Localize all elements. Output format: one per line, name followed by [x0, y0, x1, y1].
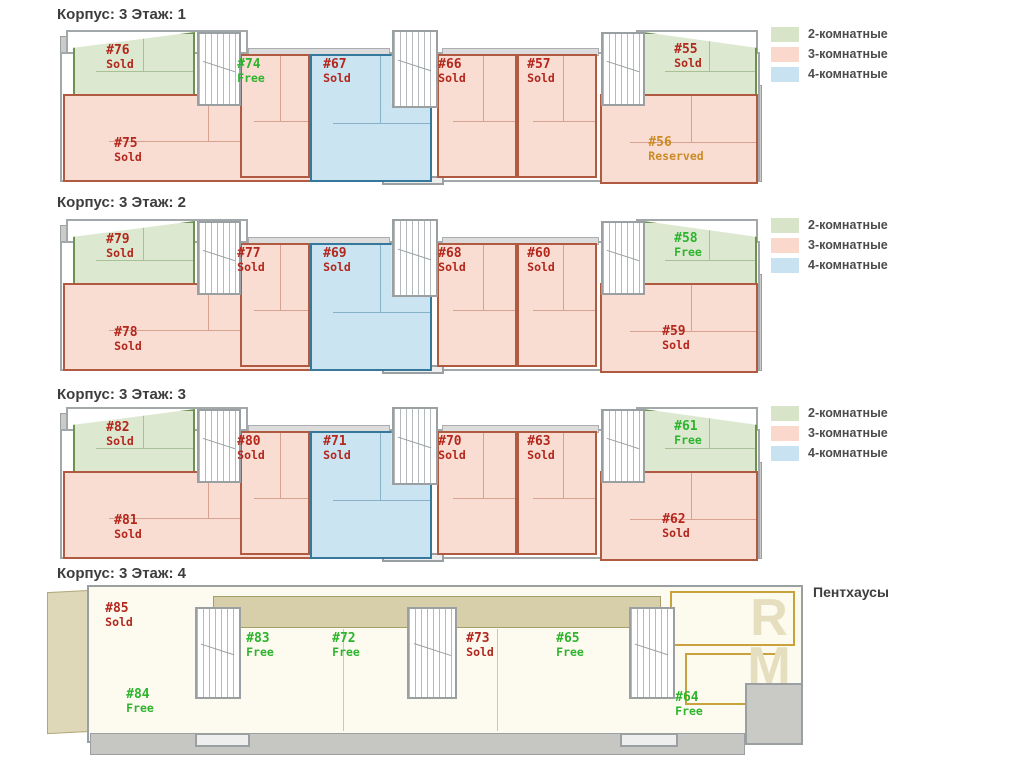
apartment-number: #55	[674, 42, 702, 57]
apartment-status: Sold	[106, 435, 134, 449]
apartment-69-label[interactable]: #69Sold	[323, 246, 351, 275]
apartment-84-label[interactable]: #84Free	[126, 687, 154, 716]
apartment-70-label[interactable]: #70Sold	[438, 434, 466, 463]
floor-2-plan: #79Sold#78Sold#77Sold#69Sold#68Sold#60So…	[60, 219, 760, 374]
legend-swatch-3rooms	[771, 47, 799, 62]
legend: 2-комнатные 3-комнатные 4-комнатные	[771, 215, 888, 275]
apartment-status: Sold	[106, 58, 134, 72]
apartment-number: #73	[466, 631, 494, 646]
stairwell-icon	[601, 409, 645, 483]
apartment-number: #56	[648, 135, 703, 150]
apartment-status: Sold	[662, 527, 690, 541]
stairwell-icon	[197, 32, 241, 106]
watermark: R M	[737, 595, 801, 691]
entrance-porch	[620, 733, 678, 747]
legend-swatch-4rooms	[771, 258, 799, 273]
apartment-number: #59	[662, 324, 690, 339]
stairwell-icon	[629, 607, 675, 699]
legend-label: 3-комнатные	[808, 426, 888, 440]
apartment-78-label[interactable]: #78Sold	[114, 325, 142, 354]
apartment-status: Sold	[237, 449, 265, 463]
legend-swatch-4rooms	[771, 67, 799, 82]
wall-divider	[497, 629, 498, 731]
apartment-57-label[interactable]: #57Sold	[527, 57, 555, 86]
apartment-number: #83	[246, 631, 274, 646]
legend-label: 4-комнатные	[808, 258, 888, 272]
legend-row-3rooms: 3-комнатные	[771, 235, 888, 255]
apartment-number: #61	[674, 419, 702, 434]
apartment-85-label[interactable]: #85Sold	[105, 601, 133, 630]
floor-2-title: Корпус: 3 Этаж: 2	[57, 194, 186, 211]
apartment-number: #76	[106, 43, 134, 58]
legend-label: 2-комнатные	[808, 406, 888, 420]
apartment-number: #71	[323, 434, 351, 449]
apartment-number: #77	[237, 246, 265, 261]
floor-4-plan: R M #85Sold#83Free#72Free#73Sold#65Free#…	[45, 583, 865, 763]
apartment-status: Sold	[105, 616, 133, 630]
apartment-status: Reserved	[648, 150, 703, 164]
apartment-56-label[interactable]: #56Reserved	[648, 135, 703, 164]
legend-label: 4-комнатные	[808, 446, 888, 460]
legend-row-4rooms: 4-комнатные	[771, 255, 888, 275]
watermark-letter: M	[737, 643, 801, 691]
apartment-63-label[interactable]: #63Sold	[527, 434, 555, 463]
apartment-status: Sold	[527, 261, 555, 275]
apartment-number: #69	[323, 246, 351, 261]
apartment-number: #62	[662, 512, 690, 527]
legend-row-2rooms: 2-комнатные	[771, 403, 888, 423]
apartment-76-label[interactable]: #76Sold	[106, 43, 134, 72]
stairwell-icon	[197, 409, 241, 483]
apartment-number: #81	[114, 513, 142, 528]
stairwell-icon	[601, 221, 645, 295]
stairwell-icon	[601, 32, 645, 106]
balcony-slab-left	[47, 590, 91, 734]
apartment-number: #75	[114, 136, 142, 151]
legend-row-2rooms: 2-комнатные	[771, 215, 888, 235]
legend-label: 2-комнатные	[808, 218, 888, 232]
legend-label: 4-комнатные	[808, 67, 888, 81]
apartment-number: #63	[527, 434, 555, 449]
legend-swatch-2rooms	[771, 406, 799, 421]
apartment-80-label[interactable]: #80Sold	[237, 434, 265, 463]
apartment-number: #70	[438, 434, 466, 449]
stairwell-icon	[195, 607, 241, 699]
apartment-status: Sold	[323, 72, 351, 86]
legend: 2-комнатные 3-комнатные 4-комнатные	[771, 403, 888, 463]
apartment-71-label[interactable]: #71Sold	[323, 434, 351, 463]
apartment-number: #80	[237, 434, 265, 449]
watermark-letter: R	[737, 595, 801, 643]
apartment-number: #57	[527, 57, 555, 72]
apartment-status: Sold	[237, 261, 265, 275]
apartment-73-label[interactable]: #73Sold	[466, 631, 494, 660]
legend-label: 3-комнатные	[808, 47, 888, 61]
apartment-number: #79	[106, 232, 134, 247]
legend-row-2rooms: 2-комнатные	[771, 24, 888, 44]
apartment-61-label[interactable]: #61Free	[674, 419, 702, 448]
apartment-72-label[interactable]: #72Free	[332, 631, 360, 660]
stairwell-icon	[407, 607, 457, 699]
apartment-status: Free	[556, 646, 584, 660]
apartment-82-label[interactable]: #82Sold	[106, 420, 134, 449]
legend-swatch-3rooms	[771, 426, 799, 441]
apartment-status: Free	[126, 702, 154, 716]
apartment-status: Free	[674, 246, 702, 260]
apartment-number: #58	[674, 231, 702, 246]
legend-swatch-4rooms	[771, 446, 799, 461]
apartment-number: #74	[237, 57, 265, 72]
floor-plans-page: Корпус: 3 Этаж: 1 Корпус: 3 Этаж: 2 Корп…	[0, 0, 1024, 768]
stairwell-icon	[197, 221, 241, 295]
apartment-number: #65	[556, 631, 584, 646]
legend: 2-комнатные 3-комнатные 4-комнатные	[771, 24, 888, 84]
entrance-porch	[195, 733, 250, 747]
apartment-status: Free	[674, 434, 702, 448]
legend-row-4rooms: 4-комнатные	[771, 64, 888, 84]
legend-label: 3-комнатные	[808, 238, 888, 252]
legend-label: 2-комнатные	[808, 27, 888, 41]
floor-3-title: Корпус: 3 Этаж: 3	[57, 386, 186, 403]
apartment-status: Sold	[438, 261, 466, 275]
apartment-66-label[interactable]: #66Sold	[438, 57, 466, 86]
apartment-status: Sold	[114, 528, 142, 542]
penthouse-label: Пентхаусы	[813, 584, 889, 600]
apartment-number: #82	[106, 420, 134, 435]
apartment-65-label[interactable]: #65Free	[556, 631, 584, 660]
apartment-status: Sold	[438, 72, 466, 86]
legend-swatch-3rooms	[771, 238, 799, 253]
apartment-number: #60	[527, 246, 555, 261]
stairwell-icon	[392, 30, 438, 108]
apartment-77-label[interactable]: #77Sold	[237, 246, 265, 275]
legend-swatch-2rooms	[771, 27, 799, 42]
apartment-status: Free	[675, 705, 703, 719]
apartment-64-label[interactable]: #64Free	[675, 690, 703, 719]
apartment-status: Sold	[674, 57, 702, 71]
apartment-59-label[interactable]: #59Sold	[662, 324, 690, 353]
apartment-75-label[interactable]: #75Sold	[114, 136, 142, 165]
apartment-60-label[interactable]: #60Sold	[527, 246, 555, 275]
apartment-62-label[interactable]: #62Sold	[662, 512, 690, 541]
apartment-status: Sold	[114, 151, 142, 165]
apartment-number: #67	[323, 57, 351, 72]
legend-row-3rooms: 3-комнатные	[771, 423, 888, 443]
apartment-status: Sold	[662, 339, 690, 353]
apartment-number: #64	[675, 690, 703, 705]
apartment-status: Sold	[466, 646, 494, 660]
apartment-74-label[interactable]: #74Free	[237, 57, 265, 86]
stairwell-icon	[392, 219, 438, 297]
apartment-status: Free	[332, 646, 360, 660]
floor-1-title: Корпус: 3 Этаж: 1	[57, 6, 186, 23]
apartment-number: #72	[332, 631, 360, 646]
apartment-status: Sold	[527, 449, 555, 463]
apartment-55-label[interactable]: #55Sold	[674, 42, 702, 71]
apartment-83-label[interactable]: #83Free	[246, 631, 274, 660]
floor-4-title: Корпус: 3 Этаж: 4	[57, 565, 186, 582]
apartment-status: Sold	[323, 261, 351, 275]
apartment-number: #68	[438, 246, 466, 261]
stairwell-icon	[392, 407, 438, 485]
apartment-68-label[interactable]: #68Sold	[438, 246, 466, 275]
floor-3-plan: #82Sold#81Sold#80Sold#71Sold#70Sold#63So…	[60, 407, 760, 562]
apartment-58-label[interactable]: #58Free	[674, 231, 702, 260]
apartment-status: Sold	[438, 449, 466, 463]
apartment-67-label[interactable]: #67Sold	[323, 57, 351, 86]
apartment-status: Free	[237, 72, 265, 86]
apartment-number: #66	[438, 57, 466, 72]
legend-swatch-2rooms	[771, 218, 799, 233]
apartment-status: Sold	[323, 449, 351, 463]
apartment-number: #84	[126, 687, 154, 702]
legend-row-4rooms: 4-комнатные	[771, 443, 888, 463]
apartment-number: #78	[114, 325, 142, 340]
apartment-81-label[interactable]: #81Sold	[114, 513, 142, 542]
apartment-status: Free	[246, 646, 274, 660]
apartment-status: Sold	[527, 72, 555, 86]
apartment-79-label[interactable]: #79Sold	[106, 232, 134, 261]
floor-1-plan: #76Sold#75Sold#74Free#67Sold#66Sold#57So…	[60, 30, 760, 185]
apartment-status: Sold	[114, 340, 142, 354]
apartment-status: Sold	[106, 247, 134, 261]
legend-row-3rooms: 3-комнатные	[771, 44, 888, 64]
apartment-number: #85	[105, 601, 133, 616]
